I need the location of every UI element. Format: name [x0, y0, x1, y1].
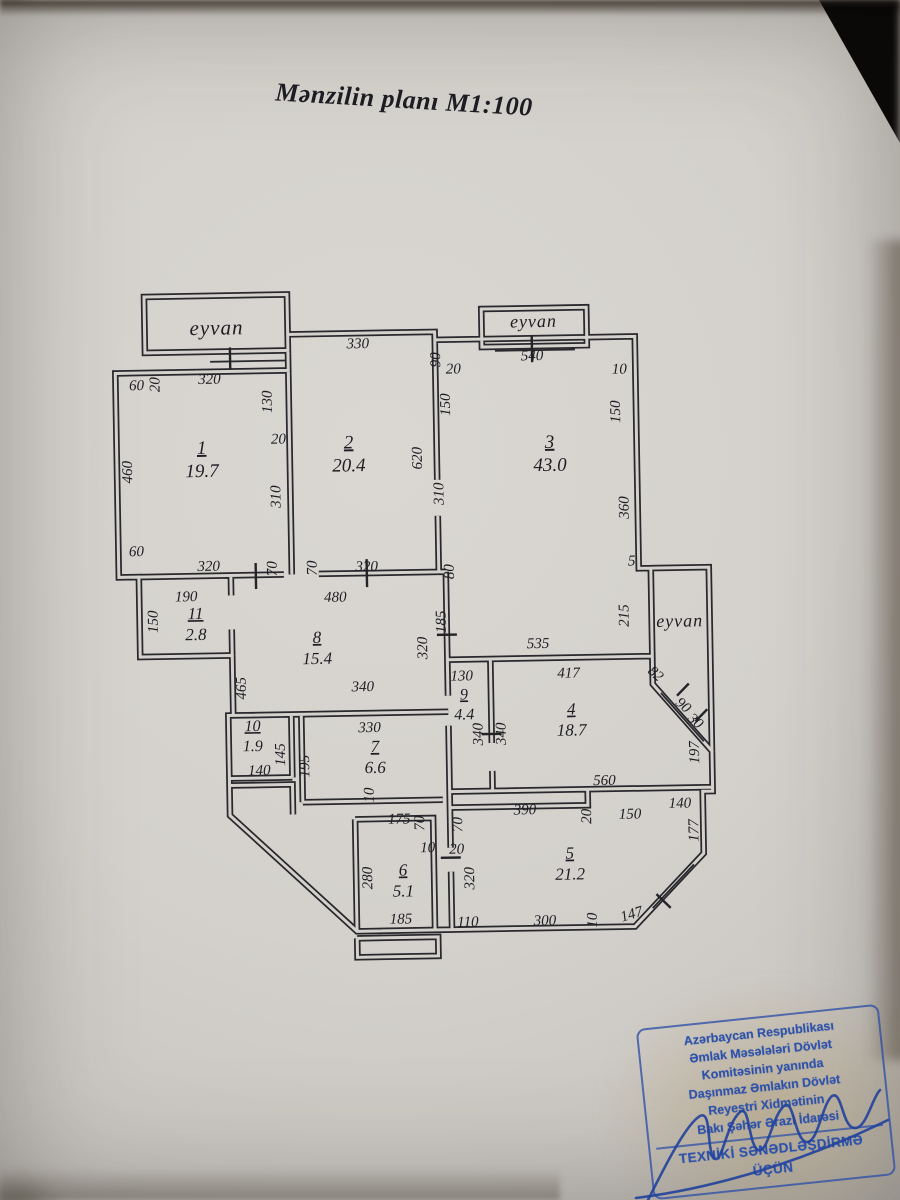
dimension-label: 10	[362, 787, 378, 803]
dimension-label: 177	[686, 818, 702, 842]
dimension-label: 460	[120, 460, 136, 483]
dimension-label: 340	[493, 722, 509, 746]
eyvan-label: eyvan	[510, 311, 557, 332]
signature-flourish	[636, 1120, 888, 1198]
room-area-label: 1.9	[243, 738, 263, 755]
room-number-label: 11	[187, 604, 203, 623]
room-number-label: 7	[370, 737, 380, 756]
dimension-label: 140	[248, 763, 271, 779]
dimension-label: 70	[412, 815, 428, 831]
dimension-label: 150	[145, 610, 161, 633]
dimension-label: 310	[268, 485, 284, 509]
room-number-label: 9	[460, 686, 468, 703]
dimension-label: 560	[593, 773, 616, 789]
room-area-label: 4.4	[454, 706, 474, 723]
dimension-label: 300	[533, 913, 557, 929]
plan-group: eyvaneyvaneyvan119.7220.4343.0112.8815.4…	[114, 287, 715, 961]
dimension-label: 110	[457, 914, 479, 930]
dimension-label: 60	[129, 378, 145, 394]
dimension-label: 185	[433, 610, 449, 633]
dimension-label: 620	[410, 446, 426, 469]
room-number-label: 6	[399, 860, 408, 879]
room-number-label: 1	[197, 438, 207, 459]
room-number-label: 5	[565, 844, 574, 863]
dimension-label: 540	[521, 348, 544, 364]
dimension-label: 130	[260, 390, 276, 413]
dimension-label: 340	[350, 679, 374, 695]
room-area-label: 43.0	[533, 455, 567, 477]
room-area-label: 2.8	[185, 625, 207, 644]
dimension-label: 5	[628, 553, 636, 569]
room-area-label: 6.6	[364, 758, 386, 777]
dimension-label: 70	[450, 816, 466, 832]
dimension-label: 150	[619, 806, 642, 822]
dimension-label: 417	[557, 665, 581, 681]
dimension-label: 320	[197, 372, 221, 388]
dimension-label: 215	[616, 604, 632, 627]
dimension-label: 20	[449, 841, 465, 857]
dimension-label: 190	[175, 589, 198, 605]
dimension-label: 320	[196, 559, 220, 575]
dimension-label: 20	[579, 808, 595, 824]
room-area-label: 20.4	[332, 455, 366, 477]
dimension-label: 330	[345, 336, 369, 352]
dimension-label: 145	[273, 743, 289, 766]
room-number-label: 2	[344, 432, 354, 453]
dimension-label: 10	[420, 840, 436, 856]
room-number-label: 3	[544, 432, 555, 453]
dimension-label: 70	[305, 560, 321, 576]
dimension-label: 360	[617, 496, 633, 520]
dimension-label: 390	[513, 802, 537, 818]
dimension-label: 20	[147, 377, 163, 393]
eyvan-label: eyvan	[656, 610, 703, 631]
dimension-label: 10	[585, 912, 601, 928]
dimension-label: 195	[297, 754, 313, 777]
dimension-label: 90	[428, 352, 444, 368]
signature	[560, 1040, 900, 1200]
dimension-label: 320	[415, 636, 431, 660]
room-number-label: 8	[313, 628, 322, 647]
dimension-label: 340	[470, 722, 486, 746]
dimension-label: 20	[446, 361, 462, 377]
room-area-label: 21.2	[555, 864, 586, 884]
dimension-label: 82	[644, 663, 666, 685]
room-number-label: 10	[244, 718, 260, 735]
dimension-label: 80	[442, 564, 458, 580]
dimension-label: 185	[389, 911, 412, 927]
room-area-label: 15.4	[302, 649, 333, 669]
eyvan-label: eyvan	[189, 315, 243, 340]
dimension-label: 130	[450, 668, 473, 684]
dimension-label: 150	[608, 400, 624, 423]
room-area-label: 18.7	[557, 720, 589, 740]
room-number-label: 4	[567, 699, 576, 718]
dimension-label: 10	[612, 362, 628, 378]
plan-labels: eyvaneyvaneyvan119.7220.4343.0112.8815.4…	[117, 307, 710, 936]
dimension-label: 480	[324, 589, 347, 605]
dimension-label: 175	[388, 811, 411, 827]
dimension-label: 60	[129, 544, 145, 560]
dimension-label: 310	[431, 482, 447, 506]
dimension-label: 320	[354, 559, 378, 575]
dimension-label: 330	[357, 720, 381, 736]
room-area-label: 5.1	[393, 881, 415, 900]
dimension-label: 140	[669, 795, 692, 811]
dimension-label: 320	[462, 866, 478, 890]
dimension-label: 280	[360, 866, 376, 889]
dimension-label: 20	[271, 431, 287, 447]
dimension-label: 535	[527, 636, 550, 652]
signature-stroke	[648, 1090, 880, 1200]
room-area-label: 19.7	[185, 461, 220, 483]
dimension-label: 150	[438, 393, 454, 416]
dimension-label: 465	[234, 676, 250, 699]
photographed-floor-plan-document: Mənzilin planı M1:100 eyvaneyvaneyvan119…	[0, 0, 900, 1200]
dimension-label: 70	[265, 561, 281, 577]
dimension-label: 197	[687, 740, 703, 764]
